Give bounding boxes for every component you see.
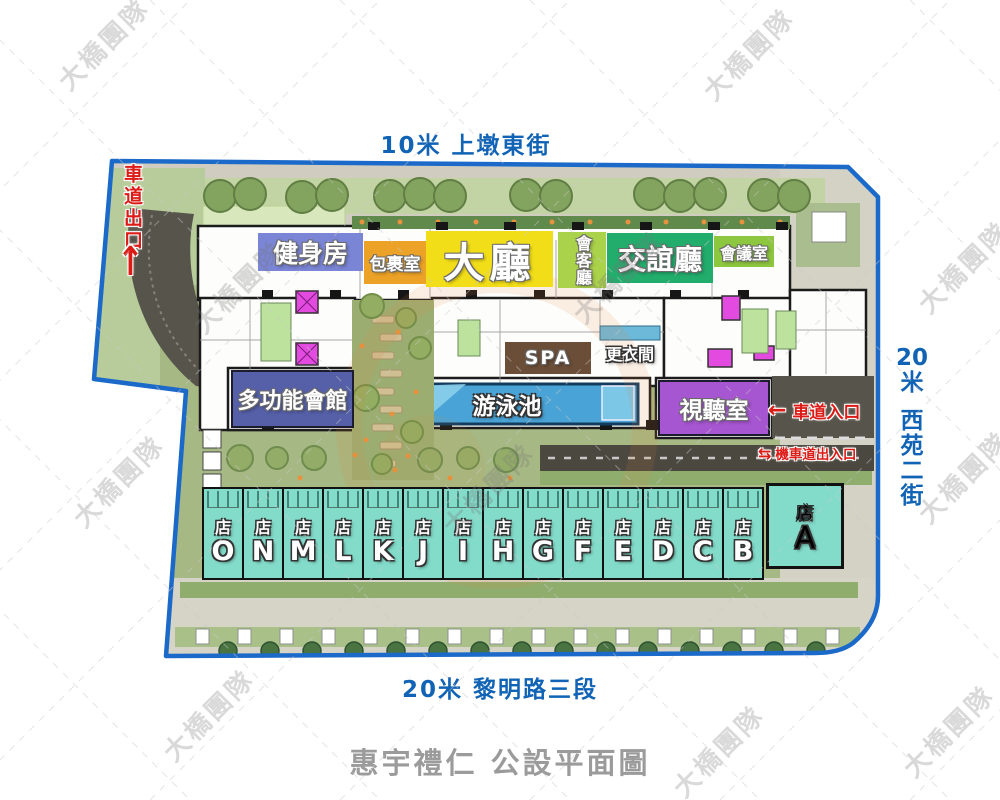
shop-unit: 店L <box>322 487 364 580</box>
moto-driveway-arrows-icon: ⇆ <box>758 444 771 463</box>
street-name-north: 10米 上墩東街 <box>316 126 616 160</box>
driveway-exit-arrow-icon: ↑ <box>117 237 144 285</box>
shop-unit: 店N <box>242 487 284 580</box>
street-name-south: 20米 黎明路三段 <box>0 670 1000 704</box>
facility-reception-label: 會客廳 <box>558 232 606 288</box>
facility-spa-label: SPA <box>505 342 591 374</box>
shop-unit: 店J <box>402 487 444 580</box>
shops-row: 店O店N店M店L店K店J店I店H店G店F店E店D店C店B <box>202 487 764 580</box>
shop-unit: 店G <box>522 487 564 580</box>
shop-fixtures <box>567 491 600 508</box>
street-name-east: 20米西苑二街 <box>892 346 932 510</box>
driveway-entrance-arrow-icon: ← <box>768 398 786 423</box>
page-title: 惠宇禮仁 公設平面圖 <box>0 740 1000 782</box>
shop-fixtures <box>487 491 520 508</box>
shop-fixtures <box>407 491 440 508</box>
shop-unit: 店M <box>282 487 324 580</box>
floor-plan-page: 健身房 包裹室 大廳 會客廳 交誼廳 會議室 SPA 更衣間 多功能會館 游泳池… <box>0 0 1000 800</box>
shop-fixtures <box>647 491 680 508</box>
moto-driveway-label: ⇆ 機車道出入口 <box>758 443 856 463</box>
ne-structure <box>812 212 846 242</box>
shop-unit: 店H <box>482 487 524 580</box>
facility-gym-label: 健身房 <box>258 233 363 271</box>
facility-package-room-label: 包裹室 <box>364 241 426 284</box>
facility-lobby-label: 大廳 <box>426 231 553 287</box>
shop-fixtures <box>607 491 640 508</box>
shop-fixtures <box>367 491 400 508</box>
shop-fixtures <box>727 491 760 508</box>
shop-fixtures <box>527 491 560 508</box>
shop-prefix: 店 <box>797 499 814 524</box>
driveway-entrance-label: ← 車道入口 <box>768 398 860 423</box>
shop-letter: A <box>795 524 816 554</box>
facility-social-hall-label: 交誼廳 <box>607 233 713 283</box>
facility-multi-hall-label: 多功能會館 <box>231 370 354 428</box>
shop-fixtures <box>447 491 480 508</box>
shop-unit: 店K <box>362 487 404 580</box>
shop-fixtures <box>327 491 360 508</box>
shop-unit: 店I <box>442 487 484 580</box>
shop-unit: 店E <box>602 487 644 580</box>
facility-changing-room-label: 更衣間 <box>594 340 666 366</box>
shop-unit: 店C <box>682 487 724 580</box>
building-hedge <box>352 216 790 229</box>
left-planters <box>203 430 221 492</box>
shop-unit: 店O <box>202 487 244 580</box>
shop-unit: 店D <box>642 487 684 580</box>
shop-fixtures <box>687 491 720 508</box>
facility-meeting-room-label: 會議室 <box>714 236 774 267</box>
facility-av-room-label: 視聽室 <box>658 380 770 436</box>
east-annex <box>790 290 866 378</box>
shop-unit: 店B <box>722 487 764 580</box>
shop-fixtures <box>207 491 240 508</box>
shop-unit: 店F <box>562 487 604 580</box>
shop-fixtures <box>247 491 280 508</box>
shop-fixtures <box>287 491 320 508</box>
facility-pool-label: 游泳池 <box>452 388 562 420</box>
shop-unit-a: 店 A <box>766 483 844 569</box>
